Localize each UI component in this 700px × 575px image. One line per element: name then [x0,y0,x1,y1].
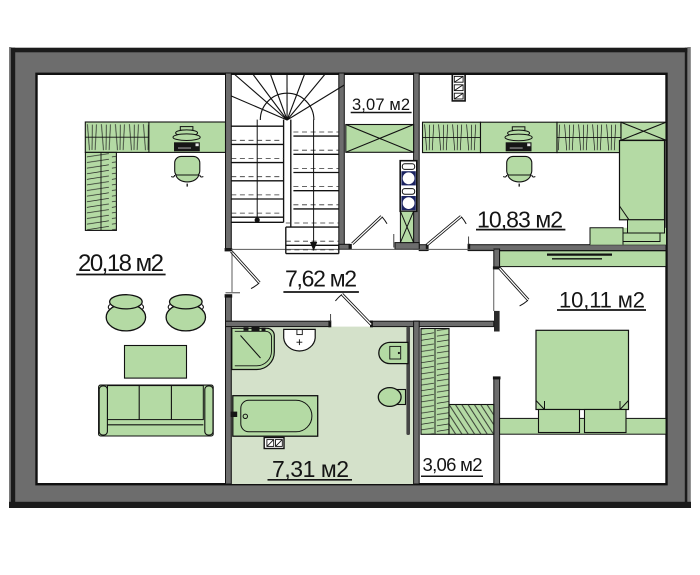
svg-text:7,31 м2: 7,31 м2 [272,456,349,482]
svg-text:10,11 м2: 10,11 м2 [559,288,645,313]
svg-text:3,06 м2: 3,06 м2 [423,454,483,475]
svg-text:3,07 м2: 3,07 м2 [352,96,410,114]
svg-text:7,62 м2: 7,62 м2 [285,266,357,292]
svg-text:20,18 м2: 20,18 м2 [78,250,164,277]
svg-text:10,83 м2: 10,83 м2 [477,206,563,232]
